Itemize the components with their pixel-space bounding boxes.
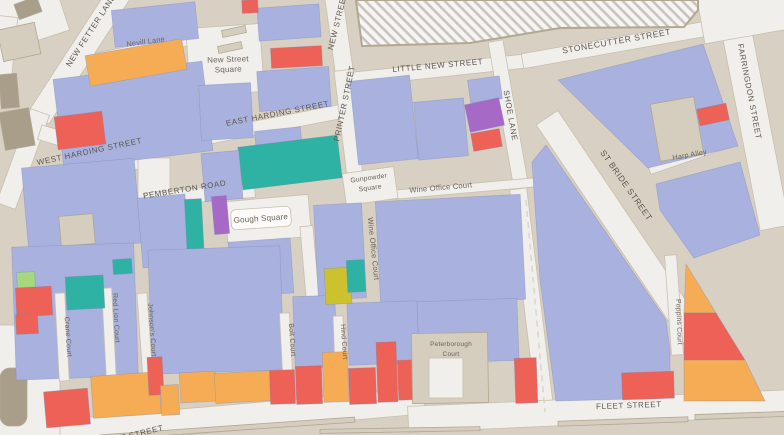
building-purple-pemberton[interactable] <box>211 195 229 234</box>
building-teal-small[interactable] <box>112 258 132 274</box>
building-red-top-edge[interactable] <box>242 0 259 13</box>
building-red-fleet-3[interactable] <box>295 366 322 405</box>
map-viewport: NEW FETTER LANENevill LaneNew StreetSqua… <box>0 0 784 435</box>
tan-building-left-1 <box>0 73 19 108</box>
building-new-street-west[interactable] <box>257 4 321 41</box>
building-red-fleet-1[interactable] <box>44 388 91 428</box>
building-green-crane[interactable] <box>17 272 36 289</box>
building-red-crane-2[interactable] <box>15 313 38 334</box>
tan-building-inner <box>59 214 95 247</box>
building-red-fleet-5[interactable] <box>376 342 398 403</box>
building-teal-gough[interactable] <box>346 260 366 293</box>
building-harding-sw[interactable] <box>201 150 243 201</box>
building-red-fleet-4[interactable] <box>348 368 376 405</box>
building-red-fleet-2[interactable] <box>269 370 295 405</box>
building-red-west-harding[interactable] <box>54 111 106 150</box>
building-orange-fleet-4[interactable] <box>214 371 271 404</box>
courtyard-peterborough <box>429 358 463 398</box>
building-teal-pair[interactable] <box>65 275 105 310</box>
building-orange-fleet-3[interactable] <box>179 371 217 403</box>
building-red-new-street[interactable] <box>271 46 323 69</box>
building-wine-office-block[interactable] <box>375 194 525 306</box>
building-red-fleet-east[interactable] <box>622 371 675 400</box>
building-red-peterborough-east[interactable] <box>514 358 538 404</box>
building-courts-center[interactable] <box>148 246 284 375</box>
building-plaza-east[interactable] <box>199 83 254 141</box>
building-printer-east[interactable] <box>350 75 418 165</box>
building-shoe-west[interactable] <box>414 98 469 160</box>
building-orange-fleet-2[interactable] <box>160 385 180 416</box>
street-map: NEW FETTER LANENevill LaneNew StreetSqua… <box>0 0 784 435</box>
tan-building-left-2 <box>0 108 35 151</box>
building-red-crane-1[interactable] <box>15 286 52 317</box>
